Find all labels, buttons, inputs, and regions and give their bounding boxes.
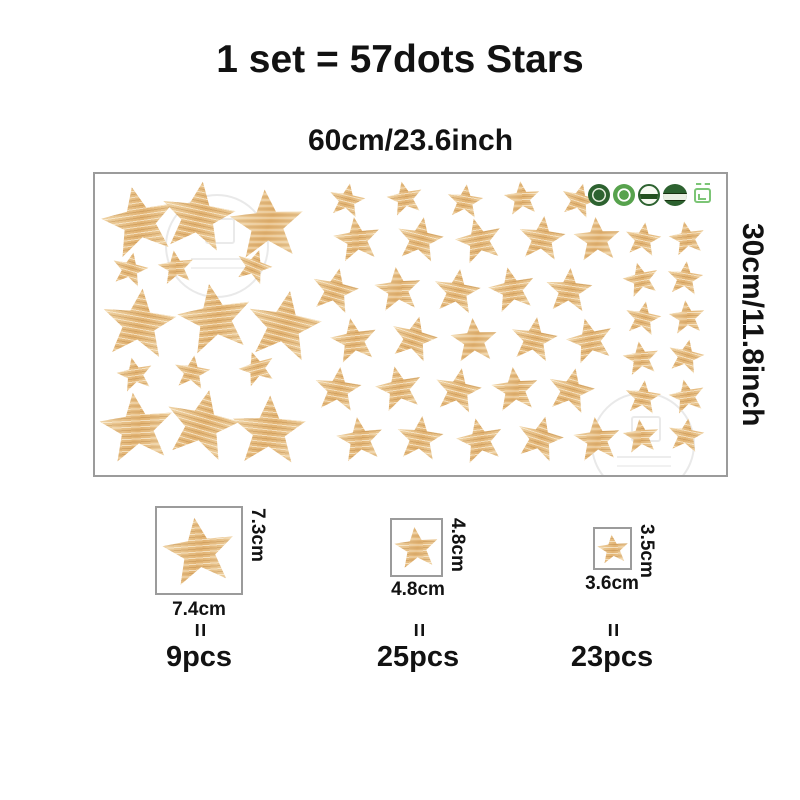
star-sticker — [571, 214, 622, 263]
star-sticker — [307, 262, 364, 317]
equals-symbol: = — [368, 618, 468, 642]
star-sticker — [622, 377, 662, 416]
star-sticker — [226, 185, 307, 262]
count-label-large: 9pcs — [143, 641, 255, 674]
star-sticker — [665, 375, 708, 417]
star-sticker — [664, 335, 707, 377]
star-sticker — [452, 412, 509, 467]
star-sticker — [171, 276, 258, 360]
star-sticker — [621, 417, 661, 456]
star-sticker — [383, 177, 426, 219]
star-sticker — [326, 313, 381, 367]
star-sticker — [619, 258, 663, 301]
star-sticker — [98, 283, 181, 363]
star-sticker — [108, 248, 151, 290]
star-sticker — [241, 282, 328, 366]
star-width-label-medium: 4.8cm — [368, 579, 468, 601]
star-sticker — [488, 363, 541, 414]
eco-seal-green-icon — [613, 184, 635, 206]
star-sticker — [621, 298, 664, 339]
reference-star-small — [595, 532, 630, 565]
eco-seal-banner-icon — [663, 184, 687, 206]
star-sticker — [95, 386, 179, 467]
star-sticker — [392, 212, 447, 266]
star-sticker — [667, 298, 707, 337]
package-cert-icon — [694, 188, 711, 203]
sheet-height-label: 30cm/11.8inch — [735, 172, 769, 477]
star-sticker — [385, 310, 443, 366]
count-label-medium: 25pcs — [358, 641, 478, 674]
star-sticker — [666, 217, 709, 258]
star-sticker — [570, 414, 623, 465]
star-sticker — [157, 381, 246, 467]
star-sticker — [450, 211, 508, 267]
eco-badges — [588, 184, 711, 206]
reference-box-small — [593, 527, 632, 570]
star-sticker — [372, 264, 425, 315]
star-sticker — [171, 352, 213, 392]
star-sticker — [234, 346, 280, 391]
page-title: 1 set = 57dots Stars — [0, 38, 800, 82]
equals-symbol: = — [562, 618, 662, 642]
star-sticker — [622, 219, 664, 259]
sheet-width-label: 60cm/23.6inch — [93, 124, 728, 158]
star-sticker — [371, 361, 428, 416]
star-sticker — [620, 338, 662, 378]
star-sticker — [448, 316, 499, 365]
star-field — [95, 174, 726, 475]
star-sticker — [511, 410, 569, 466]
star-sticker — [333, 413, 387, 465]
star-sticker — [516, 213, 569, 264]
star-sticker — [507, 313, 561, 365]
star-sticker — [331, 213, 385, 265]
star-sticker — [155, 247, 197, 287]
star-sticker — [113, 353, 156, 395]
star-sticker — [312, 364, 365, 415]
star-height-label-medium: 4.8cm — [446, 518, 468, 572]
star-width-label-small: 3.6cm — [562, 573, 662, 595]
star-sticker — [561, 312, 619, 368]
eco-seal-dark-icon — [588, 184, 610, 206]
sheet-height-label-text: 30cm/11.8inch — [735, 223, 769, 426]
star-sticker — [230, 393, 308, 468]
count-label-small: 23pcs — [552, 641, 672, 674]
star-height-label-small: 3.5cm — [635, 524, 657, 578]
star-sticker — [543, 266, 594, 315]
reference-box-medium — [390, 518, 443, 577]
star-sticker — [484, 262, 541, 317]
star-sticker — [430, 363, 485, 417]
reference-star-large — [157, 511, 240, 591]
star-sticker — [430, 265, 484, 317]
star-sticker — [543, 362, 600, 417]
reference-box-large — [155, 506, 243, 595]
sticker-sheet — [93, 172, 728, 477]
star-sticker — [502, 179, 542, 218]
star-height-label-large: 7.3cm — [246, 508, 268, 562]
star-sticker — [445, 182, 485, 221]
star-sticker — [394, 412, 447, 463]
star-sticker — [326, 179, 369, 220]
reference-star-medium — [392, 524, 441, 571]
star-sticker — [156, 175, 241, 257]
star-sticker — [94, 178, 183, 264]
star-sticker — [665, 259, 705, 298]
eco-seal-outline-icon — [638, 184, 660, 206]
star-sticker — [665, 415, 707, 455]
equals-symbol: = — [155, 618, 243, 642]
